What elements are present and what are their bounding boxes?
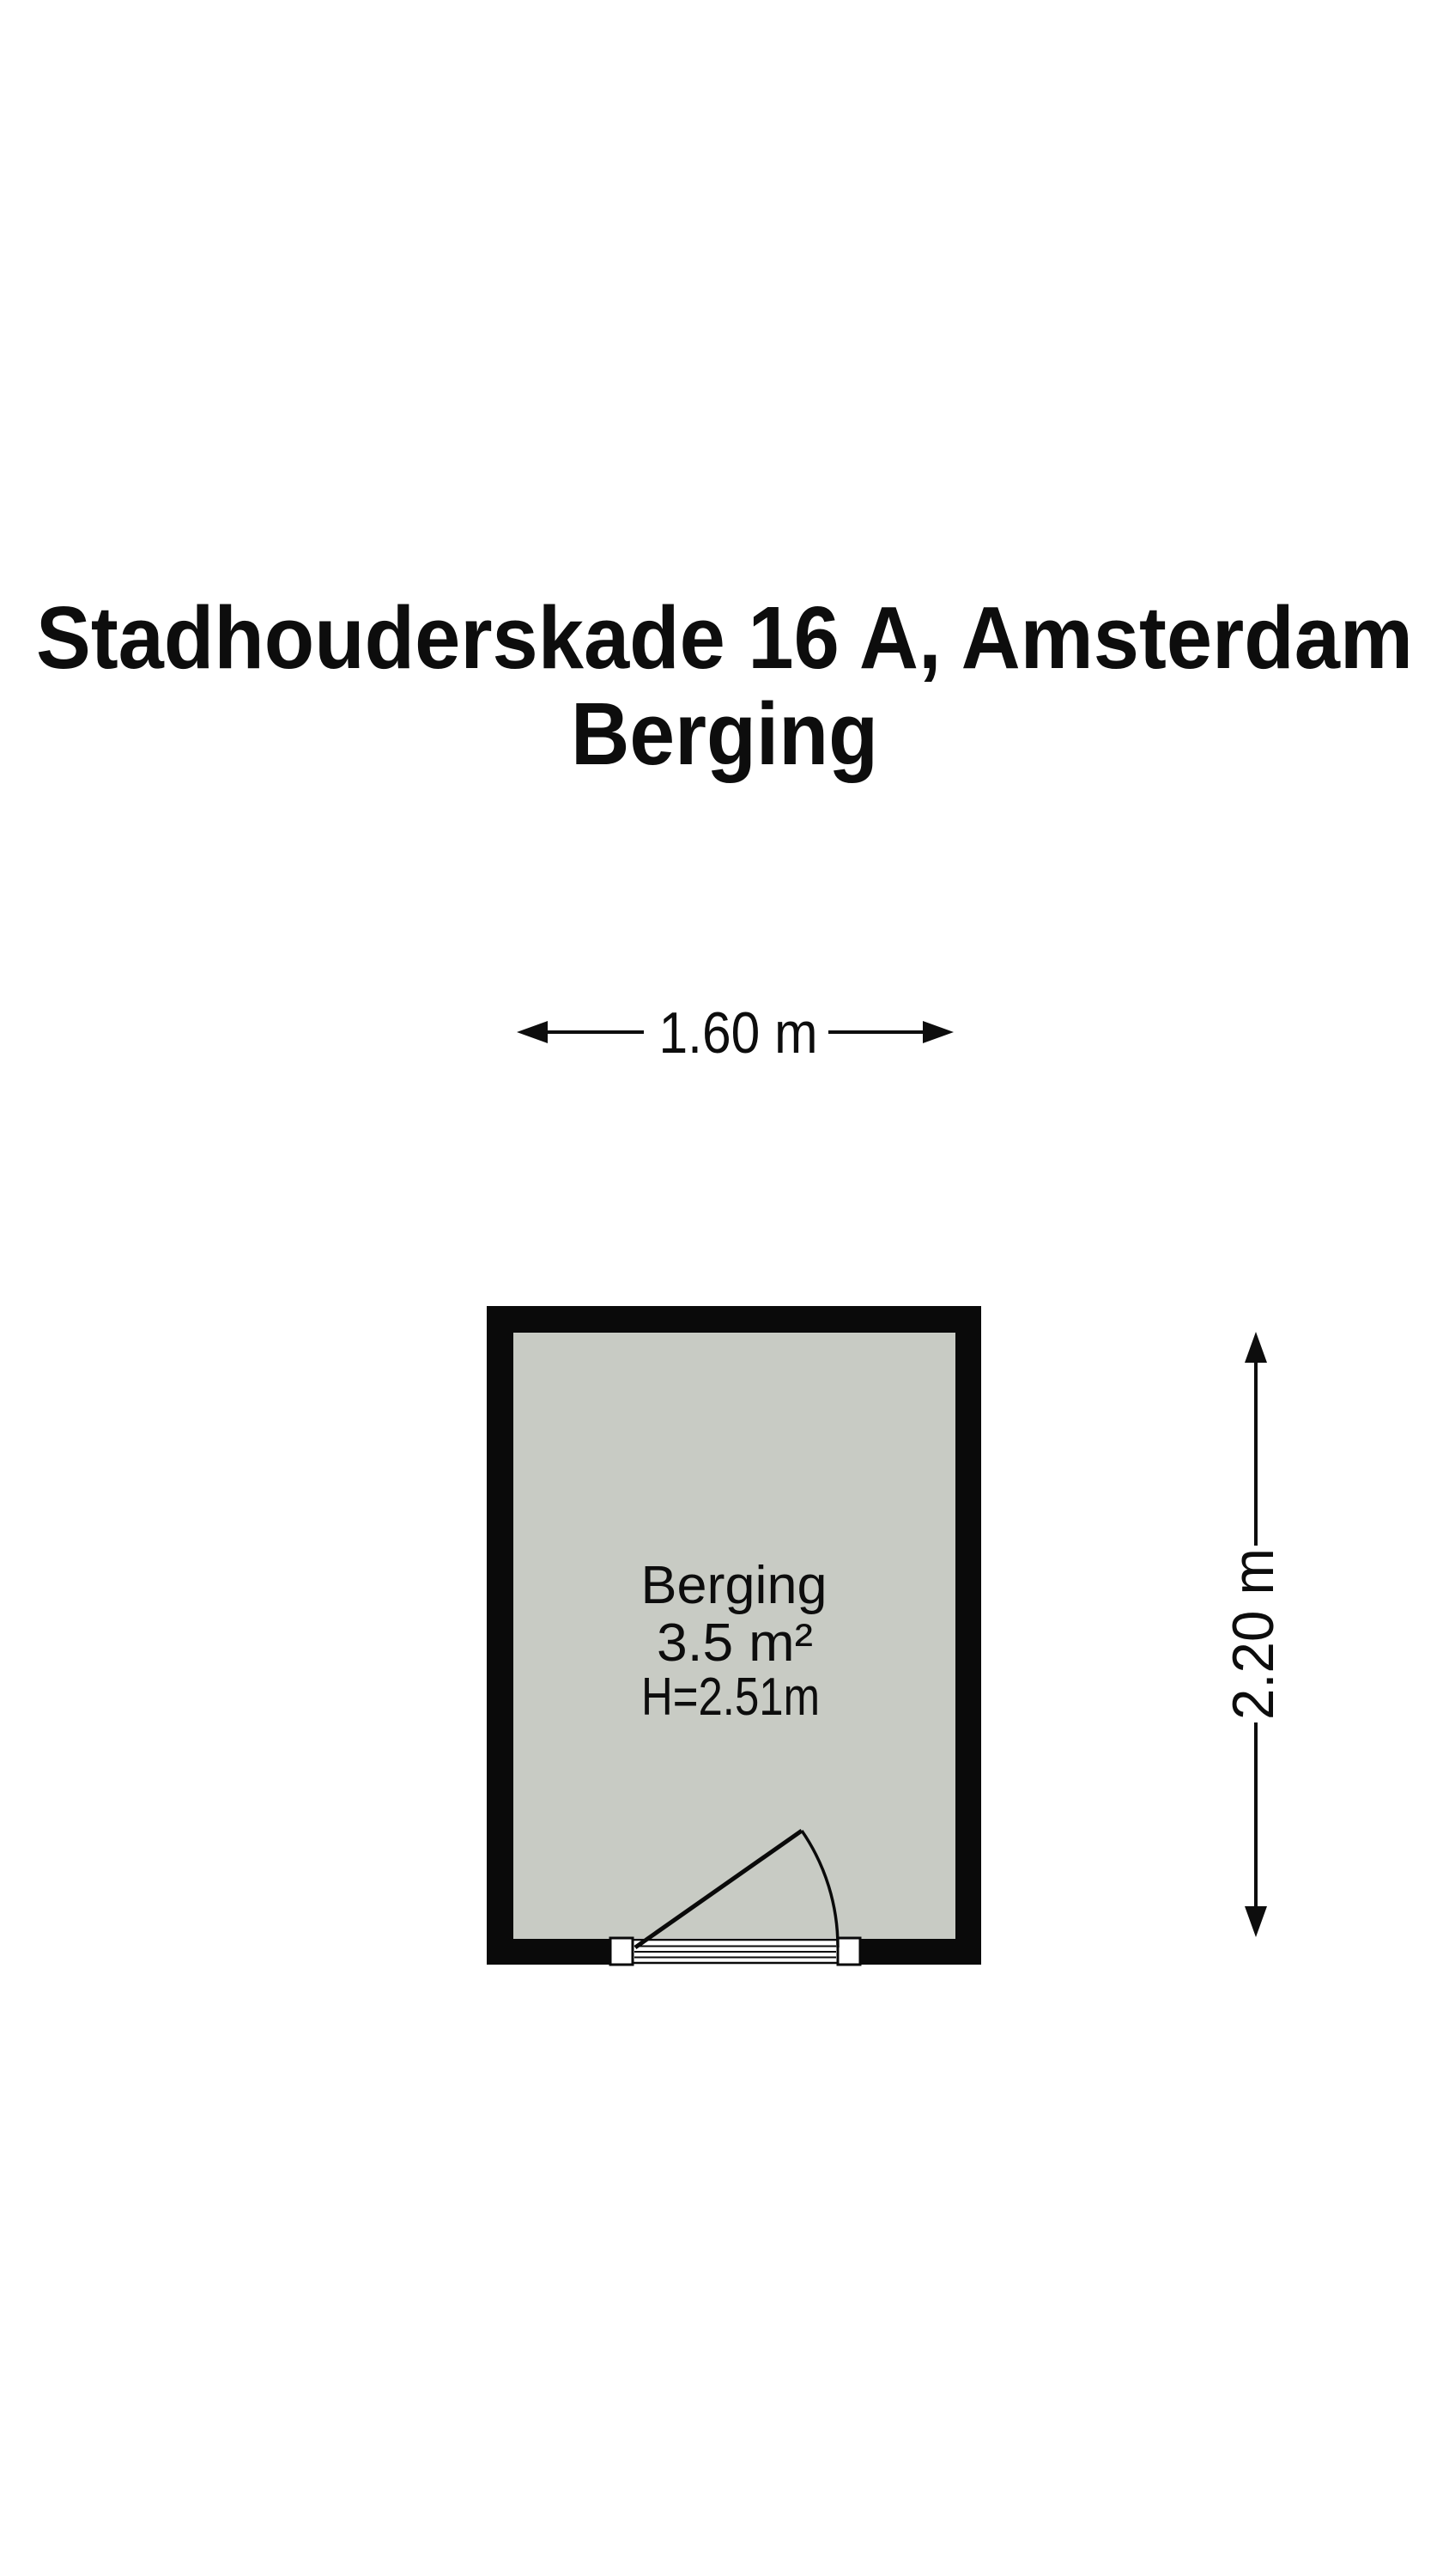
room-area-label: 3.5 m²	[657, 1613, 813, 1673]
room-labels: Berging 3.5 m² H=2.51m	[641, 1556, 828, 1727]
width-dimension-label: 1.60 m	[659, 1000, 818, 1066]
door-jamb-left	[610, 1938, 633, 1965]
room-height-label: H=2.51m	[641, 1668, 820, 1727]
floorplan-drawing: Stadhouderskade 16 A, Amsterdam Berging …	[0, 0, 1449, 2576]
height-dimension-label: 2.20 m	[1221, 1548, 1286, 1720]
title-room: Berging	[571, 684, 878, 783]
room-name-label: Berging	[641, 1556, 828, 1615]
door-jamb-right	[838, 1938, 860, 1965]
title-address: Stadhouderskade 16 A, Amsterdam	[36, 588, 1413, 687]
page-background	[0, 0, 1449, 2576]
floorplan-page: Stadhouderskade 16 A, Amsterdam Berging …	[0, 0, 1449, 2576]
